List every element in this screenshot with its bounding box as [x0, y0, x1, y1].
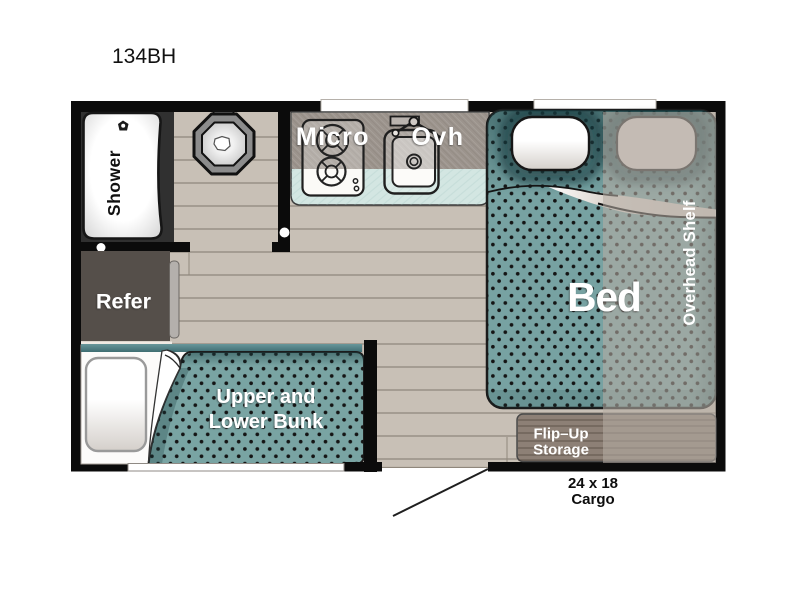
- svg-text:Flip–Up: Flip–Up: [534, 426, 589, 443]
- svg-text:Overhead Shelf: Overhead Shelf: [681, 200, 699, 325]
- svg-text:24 x 18: 24 x 18: [568, 475, 618, 492]
- svg-text:134BH: 134BH: [112, 45, 176, 68]
- svg-text:Ovh: Ovh: [411, 123, 464, 151]
- svg-text:Refer: Refer: [96, 290, 152, 314]
- svg-text:Storage: Storage: [533, 442, 589, 459]
- svg-text:Bed: Bed: [567, 274, 641, 320]
- svg-text:Micro: Micro: [296, 123, 370, 151]
- svg-text:Shower: Shower: [104, 150, 124, 216]
- svg-text:Lower Bunk: Lower Bunk: [209, 411, 324, 433]
- svg-text:Upper and: Upper and: [217, 386, 316, 408]
- svg-text:Cargo: Cargo: [571, 491, 614, 508]
